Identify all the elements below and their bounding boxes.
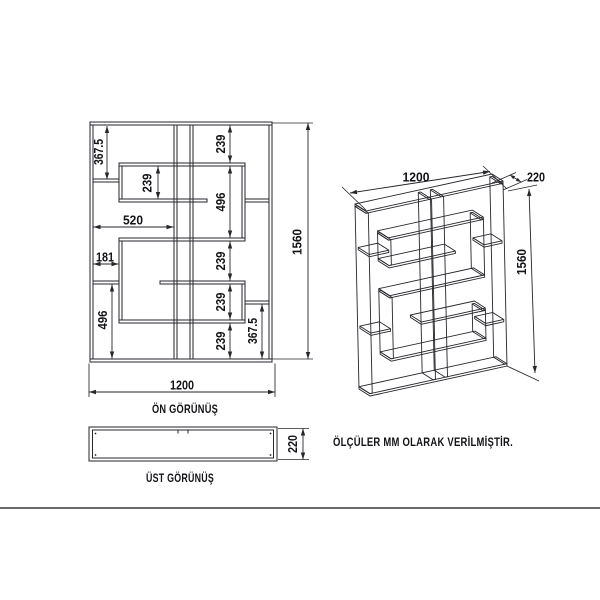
- dimension-value: 496: [95, 311, 110, 330]
- iso-panel: [410, 301, 485, 324]
- extension-line: [503, 180, 527, 191]
- iso-panel: [490, 176, 507, 364]
- dimension-value: 239: [213, 332, 228, 351]
- dimension-value: 239: [213, 252, 228, 271]
- dimension-arrowhead: [228, 126, 232, 133]
- dimension-arrowhead: [228, 274, 232, 281]
- dimension-value: 181: [96, 250, 114, 265]
- dimension-value: 367.5: [91, 139, 106, 165]
- dimension-arrowhead: [156, 167, 160, 174]
- iso-panel: [378, 244, 455, 268]
- dimension-value: 496: [213, 193, 228, 212]
- front-panel-outline: [119, 320, 245, 323]
- dimension-arrowhead: [228, 285, 232, 292]
- dimension-arrowhead: [301, 453, 305, 460]
- front-view-label: ÖN GÖRÜNÜŞ: [152, 403, 218, 416]
- dimension-value: 367.5: [245, 318, 260, 344]
- dimension-arrowhead: [260, 305, 264, 312]
- front-panel-outline: [90, 122, 272, 125]
- units-note: ÖLÇÜLER MM OLARAK VERİLMİŞTİR.: [333, 436, 513, 449]
- front-panel-outline: [190, 125, 193, 359]
- dimension-arrowhead: [110, 285, 114, 292]
- dimension-value: 1200: [170, 378, 194, 393]
- iso-panel: [473, 234, 502, 247]
- furniture-dimension-drawing: 367.5239520181496239496239239239367.5156…: [0, 0, 600, 600]
- dimension-value: 1560: [514, 249, 529, 275]
- dimension-value: 1200: [403, 170, 430, 185]
- dimension-line: [529, 189, 535, 373]
- dimension-value: 1560: [290, 229, 305, 255]
- top-view-outer-outline: [89, 427, 277, 461]
- dimension-arrowhead: [94, 225, 101, 229]
- iso-panel: [360, 322, 391, 336]
- dimension-value: 220: [527, 170, 545, 185]
- front-panel-outline: [119, 238, 245, 241]
- dimension-arrowhead: [527, 189, 531, 196]
- dimension-arrowhead: [89, 390, 96, 394]
- dimension-arrowhead: [228, 324, 232, 331]
- dimension-arrowhead: [533, 366, 537, 373]
- top-view-label: ÜST GÖRÜNÜŞ: [146, 472, 214, 485]
- dimension-arrowhead: [228, 352, 232, 359]
- front-panel-outline: [160, 281, 245, 284]
- front-panel-outline: [245, 199, 269, 202]
- dimension-value: 239: [140, 174, 155, 193]
- dimension-arrowhead: [260, 352, 264, 359]
- dimension-arrowhead: [228, 167, 232, 174]
- iso-panel: [359, 357, 507, 396]
- dimension-arrowhead: [306, 352, 310, 359]
- front-panel-outline: [269, 125, 272, 359]
- front-panel-outline: [90, 359, 272, 362]
- dimension-arrowhead: [105, 173, 109, 180]
- dimension-arrowhead: [510, 175, 515, 179]
- top-view: [89, 427, 277, 461]
- dimension-value: 239: [213, 135, 228, 154]
- top-view-dowel-dots: [95, 433, 272, 456]
- iso-panel: [358, 243, 389, 257]
- iso-panel: [475, 312, 504, 325]
- dimension-arrowhead: [228, 242, 232, 249]
- dimension-arrowhead: [110, 352, 114, 359]
- dimension-arrowhead: [301, 429, 305, 436]
- dimension-arrowhead: [306, 123, 310, 130]
- isometric-view: [355, 174, 507, 396]
- iso-panel: [379, 290, 394, 358]
- top-view-inner-outline: [93, 430, 274, 458]
- dimension-value: 239: [213, 293, 228, 312]
- extension-line: [483, 166, 507, 189]
- technical-drawing-page: 367.5239520181496239496239239239367.5156…: [0, 0, 600, 600]
- dimension-arrowhead: [228, 231, 232, 238]
- dimension-arrowhead: [105, 126, 109, 133]
- dimension-arrowhead: [156, 192, 160, 199]
- dimension-arrowhead: [228, 156, 232, 163]
- dimension-arrowhead: [268, 390, 275, 394]
- dimension-value: 220: [285, 435, 300, 453]
- dimension-value: 520: [123, 213, 143, 228]
- front-panel-outline: [119, 199, 207, 202]
- front-panel-outline: [93, 179, 119, 182]
- front-panel-outline: [245, 301, 269, 304]
- iso-panel: [355, 206, 372, 394]
- extension-line: [342, 187, 366, 210]
- dimension-arrowhead: [167, 225, 174, 229]
- dimension-arrowhead: [228, 313, 232, 320]
- dimension-arrowhead: [483, 170, 490, 174]
- dimension-arrowhead: [350, 190, 357, 194]
- front-panel-outline: [93, 281, 119, 284]
- front-panel-outline: [119, 163, 245, 166]
- front-panel-outline: [174, 125, 177, 359]
- dimension-arrowhead: [516, 178, 521, 182]
